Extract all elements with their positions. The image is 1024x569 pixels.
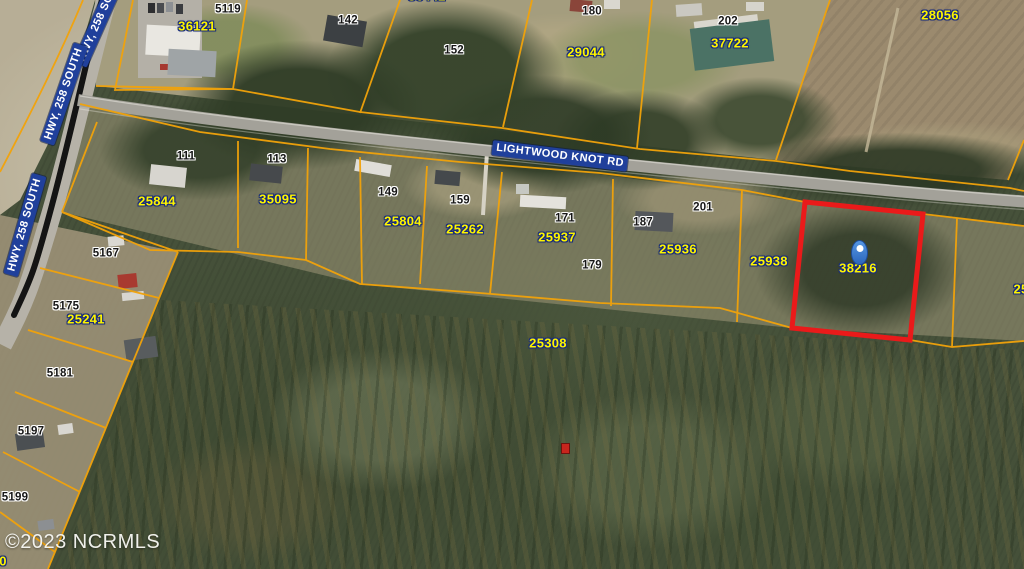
satellite-map[interactable]: 36121 36442 29044 37722 28056 25844 3509…: [0, 0, 1024, 569]
mls-number-label-partial: 0: [0, 555, 7, 568]
pin-dot: [856, 245, 863, 252]
map-pin-icon[interactable]: [851, 240, 868, 265]
copyright-watermark: ©2023 NCRMLS: [5, 531, 160, 553]
mls-number-label: 25937: [538, 231, 576, 244]
house-number-label: 5175: [53, 301, 79, 313]
mls-number-label: 25308: [529, 337, 567, 350]
house-number-label: 171: [555, 213, 575, 225]
mls-number-label: 25262: [446, 223, 484, 236]
mls-number-label: 29044: [567, 46, 605, 59]
labels-layer: 36121 36442 29044 37722 28056 25844 3509…: [0, 0, 1024, 569]
road-name-label-hwy258: HWY, 258 SOUTH: [40, 42, 88, 145]
house-number-label: 152: [444, 45, 464, 57]
mls-number-label: 25936: [659, 243, 697, 256]
red-dot-marker: [561, 443, 570, 454]
house-number-label: 5197: [18, 426, 44, 438]
mls-number-label: 35095: [259, 193, 297, 206]
house-number-label: 142: [338, 15, 358, 27]
mls-number-label: 37722: [711, 37, 749, 50]
house-number-label: 5167: [93, 248, 119, 260]
house-number-label: 201: [693, 202, 713, 214]
house-number-label: 187: [633, 217, 653, 229]
mls-number-label-partial: 25: [1013, 283, 1024, 296]
house-number-label: 5119: [215, 4, 241, 16]
house-number-label: 202: [718, 16, 738, 28]
road-name-label-lightwood: LIGHTWOOD KNOT RD: [491, 140, 628, 172]
house-number-label: 180: [582, 6, 602, 18]
mls-number-label: 36442: [408, 0, 446, 3]
mls-number-label: 36121: [178, 20, 216, 33]
house-number-label: 5199: [2, 492, 28, 504]
house-number-label: 111: [177, 151, 196, 163]
mls-number-label: 25844: [138, 195, 176, 208]
road-name-label-hwy258: HWY, 258 SOUTH: [3, 173, 46, 277]
house-number-label: 179: [582, 260, 602, 272]
mls-number-label: 25241: [67, 313, 105, 326]
house-number-label: 113: [267, 154, 286, 166]
mls-number-label: 28056: [921, 9, 959, 22]
house-number-label: 159: [450, 195, 470, 207]
mls-number-label: 25804: [384, 215, 422, 228]
mls-number-label: 25938: [750, 255, 788, 268]
house-number-label: 5181: [47, 368, 73, 380]
house-number-label: 149: [378, 187, 398, 199]
